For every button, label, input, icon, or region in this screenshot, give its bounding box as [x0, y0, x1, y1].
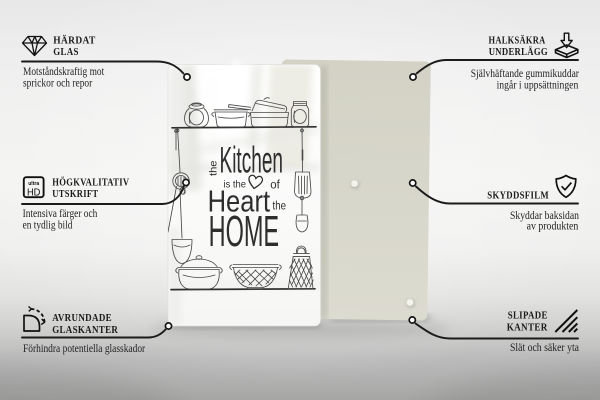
- svg-text:en tydlig bild: en tydlig bild: [23, 220, 73, 232]
- svg-text:AVRUNDADE: AVRUNDADE: [52, 312, 112, 324]
- svg-text:SKYDDSFILM: SKYDDSFILM: [487, 189, 549, 201]
- svg-text:the: the: [209, 160, 220, 176]
- svg-text:av produkten: av produkten: [527, 221, 579, 233]
- svg-text:Motståndskraftig mot: Motståndskraftig mot: [23, 65, 105, 78]
- svg-text:Självhäftande gummikuddar: Självhäftande gummikuddar: [471, 68, 579, 80]
- svg-text:HÖGKVALITATIV: HÖGKVALITATIV: [52, 176, 129, 189]
- svg-text:sprickor och repor: sprickor och repor: [23, 78, 92, 90]
- svg-text:UNDERLÄGG: UNDERLÄGG: [489, 45, 548, 58]
- svg-text:HOME: HOME: [209, 207, 280, 256]
- svg-text:ingår i uppsättningen: ingår i uppsättningen: [497, 78, 579, 91]
- svg-text:SLIPADE: SLIPADE: [508, 310, 548, 322]
- svg-text:Intensiva färger och: Intensiva färger och: [23, 208, 98, 220]
- svg-text:HÄRDAT: HÄRDAT: [53, 34, 96, 47]
- svg-text:UTSKRIFT: UTSKRIFT: [52, 188, 98, 200]
- svg-text:HD: HD: [27, 187, 41, 199]
- svg-text:KANTER: KANTER: [507, 321, 549, 333]
- svg-text:HALKSÄKRA: HALKSÄKRA: [489, 33, 546, 46]
- svg-text:Förhindra potentiella glasskad: Förhindra potentiella glasskador: [23, 343, 145, 355]
- svg-text:of: of: [270, 180, 280, 192]
- svg-text:Kitchen: Kitchen: [220, 140, 284, 181]
- svg-text:GLAS: GLAS: [53, 46, 79, 58]
- svg-text:Slät och säker yta: Slät och säker yta: [510, 342, 579, 354]
- svg-text:GLASKANTER: GLASKANTER: [52, 324, 119, 336]
